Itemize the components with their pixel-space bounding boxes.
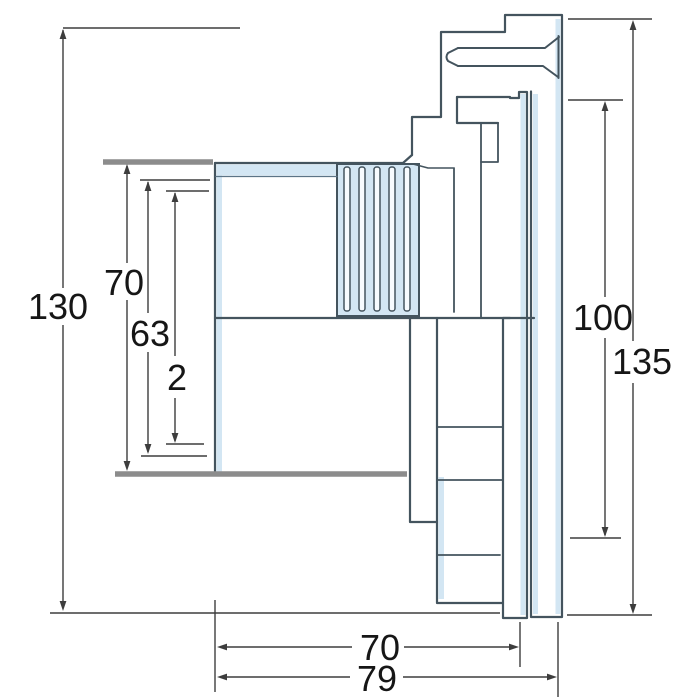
gasket-pocket xyxy=(481,123,498,162)
dim-label-2: 2 xyxy=(167,357,187,398)
arrow-up-63 xyxy=(145,181,152,191)
body-top-edge xyxy=(215,155,412,163)
cross-section-drawing: 130 70 63 2 100 135 70 79 xyxy=(0,0,700,700)
back-plate-left-highlight-band xyxy=(533,94,538,614)
arrow-down-70-left xyxy=(124,461,131,471)
screw-section xyxy=(447,36,560,78)
arrow-down-63 xyxy=(145,444,152,454)
dim-label-70-left: 70 xyxy=(104,262,144,303)
technical-drawing-canvas: 130 70 63 2 100 135 70 79 xyxy=(0,0,700,700)
arrow-up-70-left xyxy=(124,164,131,174)
arrow-down-135 xyxy=(630,604,637,614)
arrow-up-135 xyxy=(630,20,637,30)
arrow-left-79-bottom xyxy=(217,674,227,681)
thread-groove xyxy=(359,167,365,311)
arrow-right-79-bottom xyxy=(547,674,557,681)
dim-label-63: 63 xyxy=(130,313,170,354)
screw-tip xyxy=(447,48,459,66)
arrow-up-2 xyxy=(172,192,179,202)
thread-section xyxy=(337,164,419,316)
arrow-down-130 xyxy=(60,601,67,611)
thread-groove xyxy=(389,167,395,311)
screw-shank-bottom xyxy=(458,66,558,77)
thread-groove xyxy=(374,167,380,311)
thread-groove xyxy=(404,167,410,311)
clamp-plate-highlight-band xyxy=(521,94,526,615)
dim-label-79-bottom: 79 xyxy=(357,658,397,699)
arrow-down-2 xyxy=(172,433,179,443)
column-highlight-band xyxy=(439,477,445,599)
dimension-labels: 130 70 63 2 100 135 70 79 xyxy=(28,262,672,699)
body-top-highlight-band xyxy=(217,165,337,176)
arrow-up-100 xyxy=(602,101,609,111)
arrow-right-70-bottom xyxy=(509,644,519,651)
flange-step-line xyxy=(457,97,498,123)
dim-label-100: 100 xyxy=(573,297,633,338)
screw-shank-top xyxy=(458,37,559,48)
thread-groove xyxy=(344,167,350,311)
dim-label-135: 135 xyxy=(612,341,672,382)
dim-label-130: 130 xyxy=(28,286,88,327)
back-plate-right-highlight-band xyxy=(556,19,561,614)
cavity-right-edge xyxy=(410,318,437,522)
column-left-edge xyxy=(437,318,503,603)
arrow-left-70-bottom xyxy=(217,644,227,651)
arrow-down-100 xyxy=(602,527,609,537)
flange-neck-outline xyxy=(412,32,505,155)
arrow-up-130 xyxy=(60,29,67,39)
